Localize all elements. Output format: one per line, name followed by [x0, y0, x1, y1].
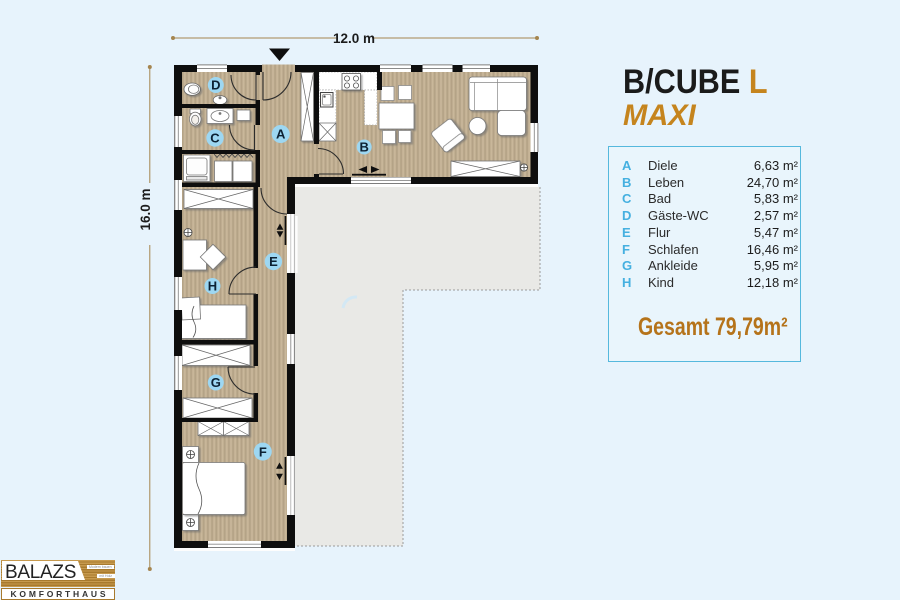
svg-text:B: B [360, 140, 369, 155]
svg-text:A: A [276, 127, 286, 142]
svg-text:D: D [211, 78, 220, 93]
svg-text:H: H [208, 279, 217, 294]
svg-text:16.0 m: 16.0 m [138, 188, 153, 230]
svg-text:12.0 m: 12.0 m [333, 31, 375, 46]
svg-text:C: C [210, 131, 220, 146]
svg-text:G: G [211, 375, 221, 390]
svg-text:F: F [259, 444, 267, 459]
svg-text:E: E [269, 254, 278, 269]
